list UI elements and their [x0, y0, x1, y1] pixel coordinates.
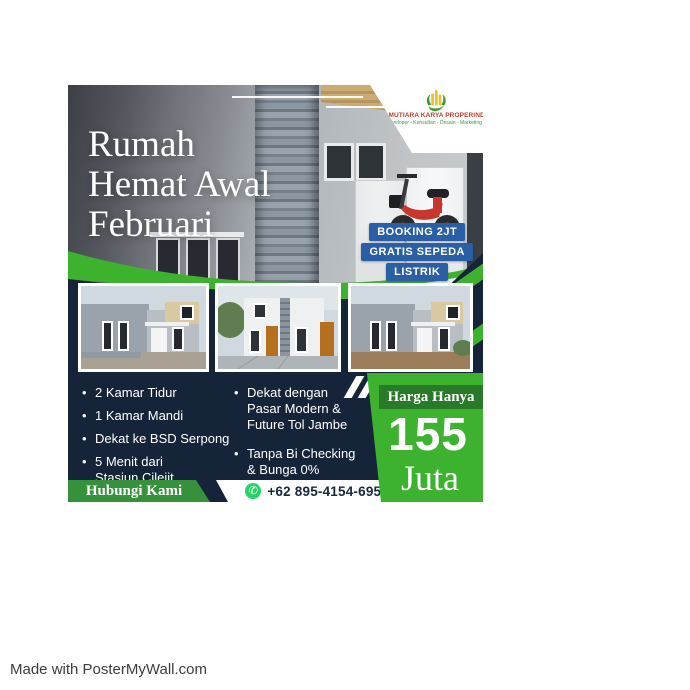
bullet-icon: •	[234, 385, 247, 433]
contact-label: Hubungi Kami	[86, 483, 182, 500]
whatsapp-icon: ✆	[245, 483, 261, 499]
price-label-band: Harga Hanya	[379, 385, 483, 409]
price-unit: Juta	[377, 459, 483, 497]
company-tagline: Developer - Konsultan - Desain - Marketi…	[386, 120, 482, 126]
photo-window	[356, 143, 386, 181]
company-name: PT MUTIARA KARYA PROPERINDO	[378, 112, 483, 119]
feature-item: •1 Kamar Mandi	[82, 408, 234, 424]
promo-badge-listrik: LISTRIK	[386, 263, 448, 281]
real-estate-poster: Rumah Hemat Awal Februari P	[68, 85, 483, 502]
poster-title: Rumah Hemat Awal Februari	[88, 125, 271, 245]
house-thumbnail-1	[78, 283, 209, 372]
title-line-2: Hemat Awal	[88, 165, 271, 205]
feature-list: •2 Kamar Tidur •1 Kamar Mandi •Dekat ke …	[82, 385, 360, 486]
feature-column-right: •Dekat dengan Pasar Modern & Future Tol …	[234, 385, 360, 486]
phone-number: +62 895-4154-69536	[267, 484, 396, 499]
feature-column-left: •2 Kamar Tidur •1 Kamar Mandi •Dekat ke …	[82, 385, 234, 486]
decor-line	[232, 96, 363, 98]
feature-item: •Tanpa Bi Checking & Bunga 0%	[234, 446, 360, 478]
title-line-1: Rumah	[88, 125, 271, 165]
bullet-icon: •	[234, 446, 247, 478]
contact-label-banner: Hubungi Kami	[68, 480, 210, 502]
bullet-icon: •	[82, 385, 95, 401]
feature-item: •Dekat dengan Pasar Modern & Future Tol …	[234, 385, 360, 433]
promo-badges: BOOKING 2JT GRATIS SEPEDA LISTRIK	[361, 223, 473, 281]
bullet-icon: •	[82, 408, 95, 424]
feature-item: •2 Kamar Tidur	[82, 385, 234, 401]
bullet-icon: •	[82, 431, 95, 447]
photo-window	[324, 143, 354, 181]
house-thumbnail-3	[348, 283, 473, 372]
promo-badge-gratis: GRATIS SEPEDA	[361, 243, 473, 261]
feature-item: •Dekat ke BSD Serpong	[82, 431, 234, 447]
postermywall-watermark: Made with PosterMyWall.com	[10, 661, 207, 678]
promo-badge-booking: BOOKING 2JT	[369, 223, 465, 241]
house-thumbnail-2	[215, 283, 341, 372]
building-leaves-logo-icon	[419, 88, 449, 112]
price-amount: 155	[373, 409, 483, 459]
company-logo: PT MUTIARA KARYA PROPERINDO Developer - …	[388, 88, 480, 126]
price-label: Harga Hanya	[387, 389, 474, 406]
title-line-3: Februari	[88, 205, 271, 245]
